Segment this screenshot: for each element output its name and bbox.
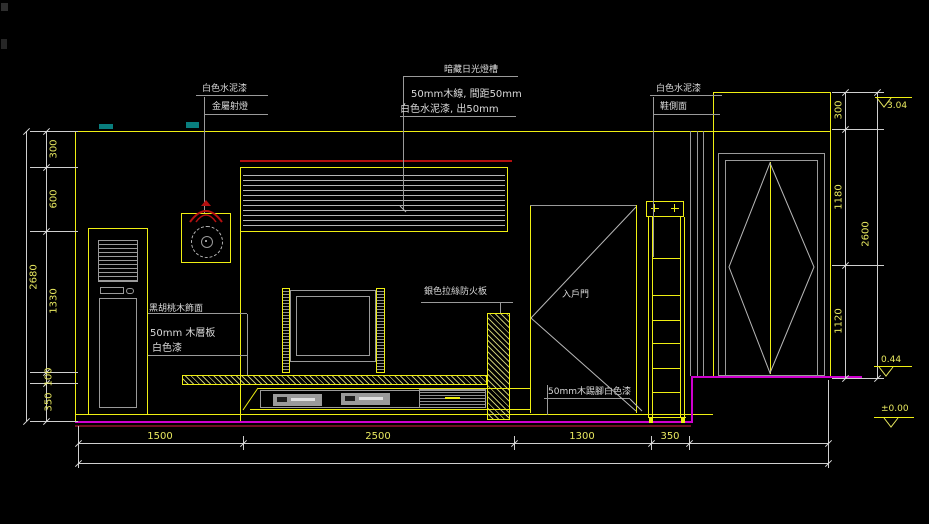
screen-artifact <box>1 3 8 11</box>
cabinet-bottom-line <box>250 409 530 410</box>
cross-mark <box>671 208 679 209</box>
light-trough-red-line <box>240 160 512 162</box>
label-underline <box>650 95 722 96</box>
slat-finish-label: 白色水泥漆, 出50mm <box>400 105 499 115</box>
entry-door-left-edge <box>530 205 531 413</box>
tiny-dimension-artifact <box>99 124 113 129</box>
light-trough-label: 暗藏日光燈槽 <box>444 65 498 75</box>
right-wall-line <box>830 92 831 376</box>
left-wall-finish-label: 白色水泥漆 <box>202 84 247 94</box>
elevation-0.00: ±0.00 <box>881 404 909 414</box>
slat-panel <box>240 167 508 232</box>
entry-door-label: 入戶門 <box>562 290 589 300</box>
shoe-cabinet-shelf <box>653 392 680 393</box>
wood-shelf-hatched <box>182 375 487 385</box>
shoe-cabinet-shelf <box>653 320 680 321</box>
elevation-marker-line <box>874 417 914 418</box>
cross-mark <box>654 204 655 212</box>
dimension-line-right-chain <box>845 92 846 378</box>
room-door-inner-frame <box>725 160 818 376</box>
dim-right-300: 300 <box>834 100 845 119</box>
extension-line <box>30 131 78 132</box>
spotlight-center-dot <box>205 240 207 242</box>
ac-control-bar <box>100 287 124 294</box>
entry-door-top-edge <box>530 205 636 206</box>
shoe-cabinet-shelf <box>653 343 680 344</box>
elevation-triangle <box>879 367 893 376</box>
base-line <box>75 414 713 415</box>
leader-shoe-cabinet <box>653 97 654 257</box>
skirting-label: 50mm木踢腳白色漆 <box>548 387 631 397</box>
tv-left-column <box>282 288 290 373</box>
shoe-cabinet-shelf <box>653 368 680 369</box>
elevation-triangle <box>884 418 898 427</box>
door-swing-line <box>531 207 636 318</box>
label-underline <box>196 95 268 96</box>
shoe-cabinet-edge <box>648 217 649 417</box>
label-underline <box>403 76 518 77</box>
dim-right-overall-2600: 2600 <box>861 221 872 246</box>
dimension-line-right-overall <box>877 92 878 378</box>
ceiling-line <box>75 131 830 132</box>
label-underline <box>400 116 516 117</box>
metal-spotlight-label: 金屬射燈 <box>212 102 248 112</box>
leader-fireproof-board <box>500 303 501 313</box>
ac-louvre-vent <box>98 240 138 282</box>
av-device-slot <box>277 397 287 402</box>
extension-line <box>30 167 78 168</box>
shoe-cabinet-side-label: 鞋側面 <box>660 102 687 112</box>
screen-artifact <box>1 39 7 49</box>
dim-left-overall-2680: 2680 <box>29 264 40 289</box>
shoe-cabinet-top-box <box>646 201 684 217</box>
fireproof-board-label: 銀色拉絲防火板 <box>424 287 487 297</box>
dim-right-1180: 1180 <box>834 184 845 209</box>
wall-side-line <box>697 131 698 376</box>
label-underline <box>421 302 513 303</box>
dim-bottom-1500: 1500 <box>147 431 172 442</box>
tiny-dimension-artifact <box>186 122 199 128</box>
label-underline <box>653 114 720 115</box>
elevation-marker-line <box>874 366 912 367</box>
wood-shelf-label: 50mm 木層板 <box>150 329 215 339</box>
av-device-display <box>359 397 383 400</box>
extension-line <box>30 421 78 422</box>
cabinet-slant-edge <box>243 388 258 410</box>
left-wall-line <box>75 131 76 421</box>
ac-body-panel <box>99 298 137 408</box>
label-underline <box>544 398 630 399</box>
dim-bottom-350: 350 <box>660 431 679 442</box>
dimension-line-bottom-chain <box>78 443 828 444</box>
ac-handle <box>126 288 134 294</box>
beam-left-line <box>713 92 714 376</box>
dim-left-1330: 1330 <box>49 288 60 313</box>
spotlight-red-arrow <box>201 200 211 206</box>
dim-left-300: 300 <box>49 139 60 158</box>
tv-right-column <box>376 288 385 373</box>
wall-side-line <box>703 131 704 376</box>
room-door-center-line <box>770 162 771 374</box>
av-device <box>273 394 322 406</box>
floor-line-maroon <box>75 425 691 427</box>
label-underline <box>148 355 247 356</box>
dim-bottom-1300: 1300 <box>569 431 594 442</box>
top-beam-line <box>713 92 830 93</box>
dimension-line-bottom-overall <box>78 463 828 464</box>
elevation-0.44: 0.44 <box>881 355 901 365</box>
dim-right-1120: 1120 <box>834 308 845 333</box>
dimension-line-left-overall <box>26 131 27 421</box>
dim-bottom-2500: 2500 <box>365 431 390 442</box>
dim-left-600: 600 <box>49 189 60 208</box>
dim-tick <box>23 418 30 425</box>
av-device-display <box>291 398 315 401</box>
spotlight-inner-circle <box>201 236 213 248</box>
shoe-cabinet-foot <box>649 417 653 423</box>
shelf-finish-label: 白色漆 <box>152 344 182 354</box>
shoe-cabinet-edge <box>680 217 681 417</box>
elevation-3.04: 3.04 <box>887 101 907 111</box>
elevation-marker-line <box>875 97 912 98</box>
entry-door-right-edge <box>636 205 637 413</box>
slat-lines <box>243 171 505 229</box>
shoe-cabinet-foot <box>681 417 685 423</box>
shoe-cabinet-shelf <box>653 295 680 296</box>
floor-line-magenta <box>75 421 691 423</box>
wall-side-line <box>690 131 691 376</box>
cross-mark <box>674 204 675 212</box>
right-wall-finish-label: 白色水泥漆 <box>656 84 701 94</box>
cad-elevation-canvas: 入戶門 白色水泥漆 金屬射燈 暗藏日光燈槽 50mm木線, 間距50mm 白色水… <box>0 0 929 524</box>
dim-left-350: 350 <box>44 392 55 411</box>
panel-left-edge <box>240 232 241 421</box>
roller-handle <box>445 397 460 399</box>
extension-line <box>828 380 829 468</box>
leader-slat-panel <box>403 77 404 210</box>
shoe-cabinet-shelf <box>653 258 680 259</box>
av-device <box>341 393 390 405</box>
fireproof-column-hatched <box>487 313 510 420</box>
tv-screen <box>296 296 370 356</box>
av-device-slot <box>345 396 355 401</box>
leader-wood-shelf <box>247 314 248 375</box>
extension-line <box>30 231 78 232</box>
floor-step-line <box>691 376 693 423</box>
cabinet-top-line <box>258 388 530 389</box>
dim-left-100: 100 <box>44 367 55 386</box>
label-underline <box>204 114 268 115</box>
shoe-cabinet-edge <box>684 217 685 417</box>
wood-slats-label: 50mm木線, 間距50mm <box>411 90 522 100</box>
label-underline <box>148 313 247 314</box>
